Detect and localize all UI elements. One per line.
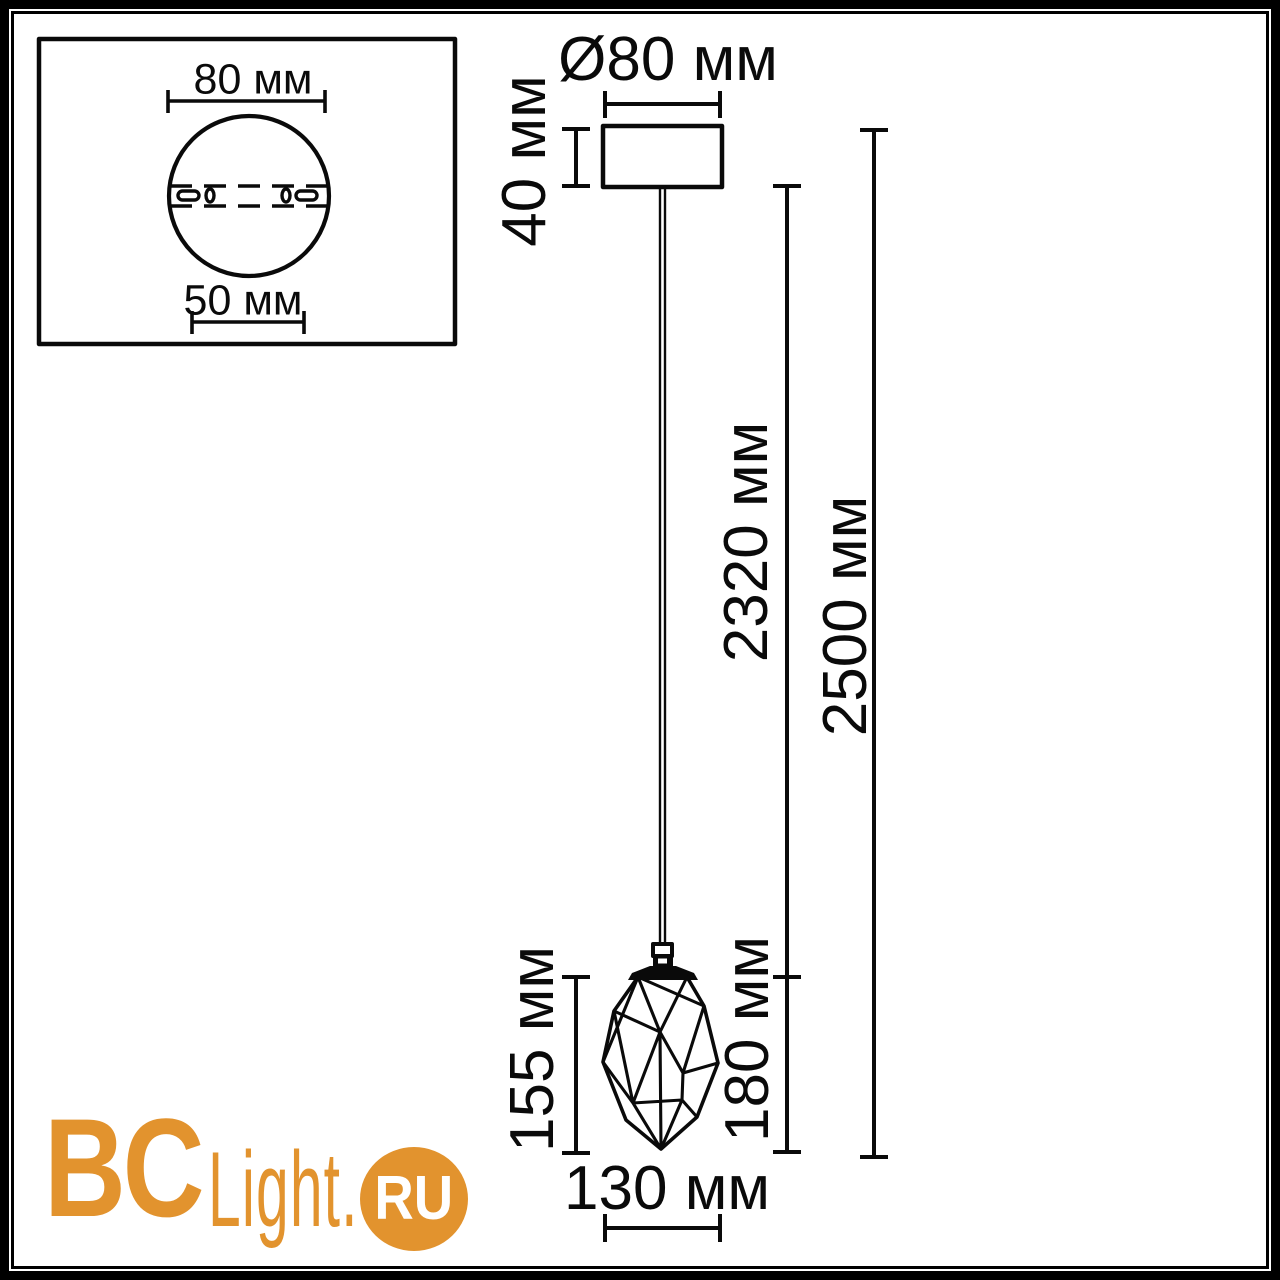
pendant-lamp-dimension-drawing: 80 мм 50 мм Ø80 мм 40 мм 2320 мм 2500 мм… (0, 0, 1280, 1280)
shade-socket-height-label: 180 мм (717, 936, 779, 1142)
inset-hole-left (206, 189, 214, 202)
cord-length-label: 2320 мм (716, 422, 778, 662)
dim-line-canopy-height (562, 129, 590, 186)
inset-slot-left (178, 191, 199, 200)
brand-logo-light: Light. (208, 1136, 359, 1243)
inset-hole-right (282, 189, 290, 202)
canopy-body (603, 126, 722, 187)
cord-grip (653, 944, 672, 956)
crystal-shade (603, 977, 718, 1149)
canopy-diameter-label: Ø80 мм (558, 29, 778, 91)
inset-mounting-bracket (170, 186, 328, 206)
line-art (0, 0, 1280, 1280)
brand-logo-ru: RU (375, 1168, 454, 1230)
inset-spacing-label: 50 мм (184, 280, 303, 323)
inset-diameter-label: 80 мм (194, 59, 313, 102)
shade-width-label: 130 мм (564, 1158, 770, 1220)
dim-line-canopy-diameter (605, 91, 720, 118)
total-height-label: 2500 мм (815, 496, 877, 736)
inset-slot-right (296, 191, 317, 200)
shade-height-label: 155 мм (502, 946, 564, 1152)
inset-canopy-circle (169, 116, 329, 276)
suspension-cord (660, 188, 665, 944)
brand-logo-bc: BC (44, 1098, 201, 1238)
canopy-height-label: 40 мм (494, 75, 556, 246)
lamp-socket (628, 944, 698, 980)
brand-logo-circle: RU (360, 1147, 468, 1251)
